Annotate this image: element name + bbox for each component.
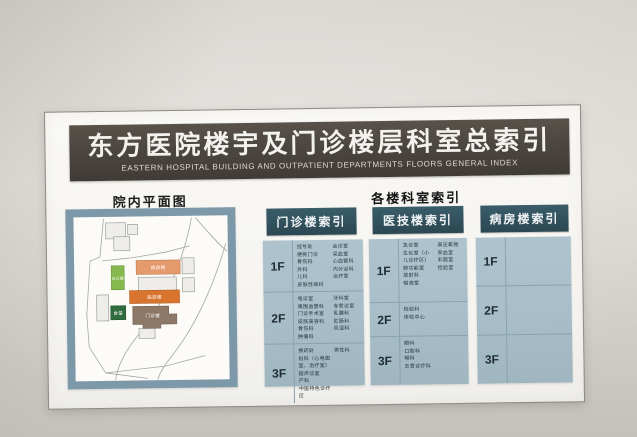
department-names: 会诊室 采血室 心血管科 内分泌科 治疗室 xyxy=(332,243,361,288)
outline-building-2 xyxy=(114,237,130,251)
outline-building-8 xyxy=(139,328,155,338)
floor-label: 3F xyxy=(264,344,295,403)
floor-label: 2F xyxy=(263,292,294,343)
department-names: 换药处 妇科（心电图室、治疗室） 超声诊室 产科 中医特色诊疗区 xyxy=(298,348,331,401)
ward-index-table: 1F 2F 3F xyxy=(476,236,573,383)
road-curve-3 xyxy=(195,217,226,251)
ward-index-header: 病房楼索引 xyxy=(480,204,568,232)
department-names xyxy=(439,340,467,382)
outpatient-index-header: 门诊楼索引 xyxy=(266,207,356,235)
department-list xyxy=(506,236,572,285)
floor-label: 2F xyxy=(370,303,400,336)
department-list xyxy=(507,334,573,383)
department-names: 挂号处 便民门诊 骨伤科 外科 儿科 皮肤性病科 xyxy=(297,244,330,289)
department-list: 挂号处 便民门诊 骨伤科 外科 儿科 皮肤性病科 会诊室 采血室 心血管科 内分… xyxy=(293,239,364,291)
table-row: 1F 挂号处 便民门诊 骨伤科 外科 儿科 皮肤性病科 会诊室 采血室 心血管科… xyxy=(263,239,364,292)
table-row: 3F xyxy=(477,334,573,383)
table-row: 3F 眼科 口腔科 喉科 五官诊疗科 xyxy=(370,336,469,385)
department-names xyxy=(511,339,542,381)
medtech-index-header: 医技楼索引 xyxy=(372,206,463,234)
medtech-index-table: 1F 急诊室 生化室（小儿诊疗区） 肺功能室 放射科 输液室 高压氧舱 采血室 … xyxy=(369,238,469,385)
table-row: 2F xyxy=(476,285,572,335)
photo-of-hospital-sign: 东方医院楼宇及门诊楼层科室总索引 EASTERN HOSPITAL BUILDI… xyxy=(0,0,637,437)
department-names xyxy=(510,241,541,283)
department-names: 电诊室 周围血管科 门诊手术室 皮肤美容科 骨伤科 肿瘤科 xyxy=(298,296,331,341)
department-names xyxy=(438,306,466,333)
department-names: 男性科 xyxy=(334,347,363,400)
campus-map: 病房楼 医技楼 门诊楼 办公楼 食堂 xyxy=(65,207,237,389)
sign-title-english: EASTERN HOSPITAL BUILDING AND OUTPATIENT… xyxy=(121,158,518,173)
department-names: 高压氧舱 采血室 彩超室 检验室 xyxy=(437,242,465,299)
department-names xyxy=(544,338,571,380)
floor-label: 1F xyxy=(369,239,400,302)
floor-label: 3F xyxy=(370,337,401,385)
department-list: 电诊室 周围血管科 门诊手术室 皮肤美容科 骨伤科 肿瘤科 牙科室 专家诊室 乳… xyxy=(293,291,364,343)
outline-building-7 xyxy=(182,278,194,292)
office-building-label: 办公楼 xyxy=(112,276,124,281)
department-names: 急诊室 生化室（小儿诊疗区） 肺功能室 放射科 输液室 xyxy=(403,242,435,299)
department-names xyxy=(543,240,570,282)
department-names xyxy=(543,289,570,331)
campus-map-drawing: 病房楼 医技楼 门诊楼 办公楼 食堂 xyxy=(73,215,229,381)
floor-label: 3F xyxy=(477,335,508,383)
department-list: 急诊室 生化室（小儿诊疗区） 肺功能室 放射科 输液室 高压氧舱 采血室 彩超室… xyxy=(399,238,468,302)
floor-label: 2F xyxy=(476,286,507,334)
table-row: 2F 电诊室 周围血管科 门诊手术室 皮肤美容科 骨伤科 肿瘤科 牙科室 专家诊… xyxy=(263,291,364,344)
bottom-path-line xyxy=(105,356,205,373)
outline-building-4 xyxy=(97,295,109,321)
department-list xyxy=(506,285,572,334)
table-row: 2F 检验科 体检中心 xyxy=(370,302,468,337)
outpatient-index-table: 1F 挂号处 便民门诊 骨伤科 外科 儿科 皮肤性病科 会诊室 采血室 心血管科… xyxy=(263,239,365,386)
table-row: 3F 换药处 妇科（心电图室、治疗室） 超声诊室 产科 中医特色诊疗区 男性科 xyxy=(264,343,365,403)
table-row: 1F 急诊室 生化室（小儿诊疗区） 肺功能室 放射科 输液室 高压氧舱 采血室 … xyxy=(369,238,468,303)
department-names: 检验科 体检中心 xyxy=(404,306,436,333)
floor-label: 1F xyxy=(476,237,507,285)
floor-label: 1F xyxy=(263,240,294,291)
sign-title-chinese: 东方医院楼宇及门诊楼层科室总索引 xyxy=(87,127,551,159)
sign-title-bar: 东方医院楼宇及门诊楼层科室总索引 EASTERN HOSPITAL BUILDI… xyxy=(69,118,570,181)
department-names xyxy=(510,290,541,332)
outline-building-6 xyxy=(182,258,194,274)
department-names: 牙科室 专家诊室 乳腺科 肛肠科 风湿科 xyxy=(333,295,362,340)
department-list: 眼科 口腔科 喉科 五官诊疗科 xyxy=(400,336,469,385)
sign-board: 东方医院楼宇及门诊楼层科室总索引 EASTERN HOSPITAL BUILDI… xyxy=(44,104,585,409)
department-list: 换药处 妇科（心电图室、治疗室） 超声诊室 产科 中医特色诊疗区 男性科 xyxy=(294,343,365,402)
department-list: 检验科 体检中心 xyxy=(400,302,468,336)
outline-building-3 xyxy=(128,224,138,234)
table-row: 1F xyxy=(476,236,572,286)
department-names: 眼科 口腔科 喉科 五官诊疗科 xyxy=(404,340,436,382)
